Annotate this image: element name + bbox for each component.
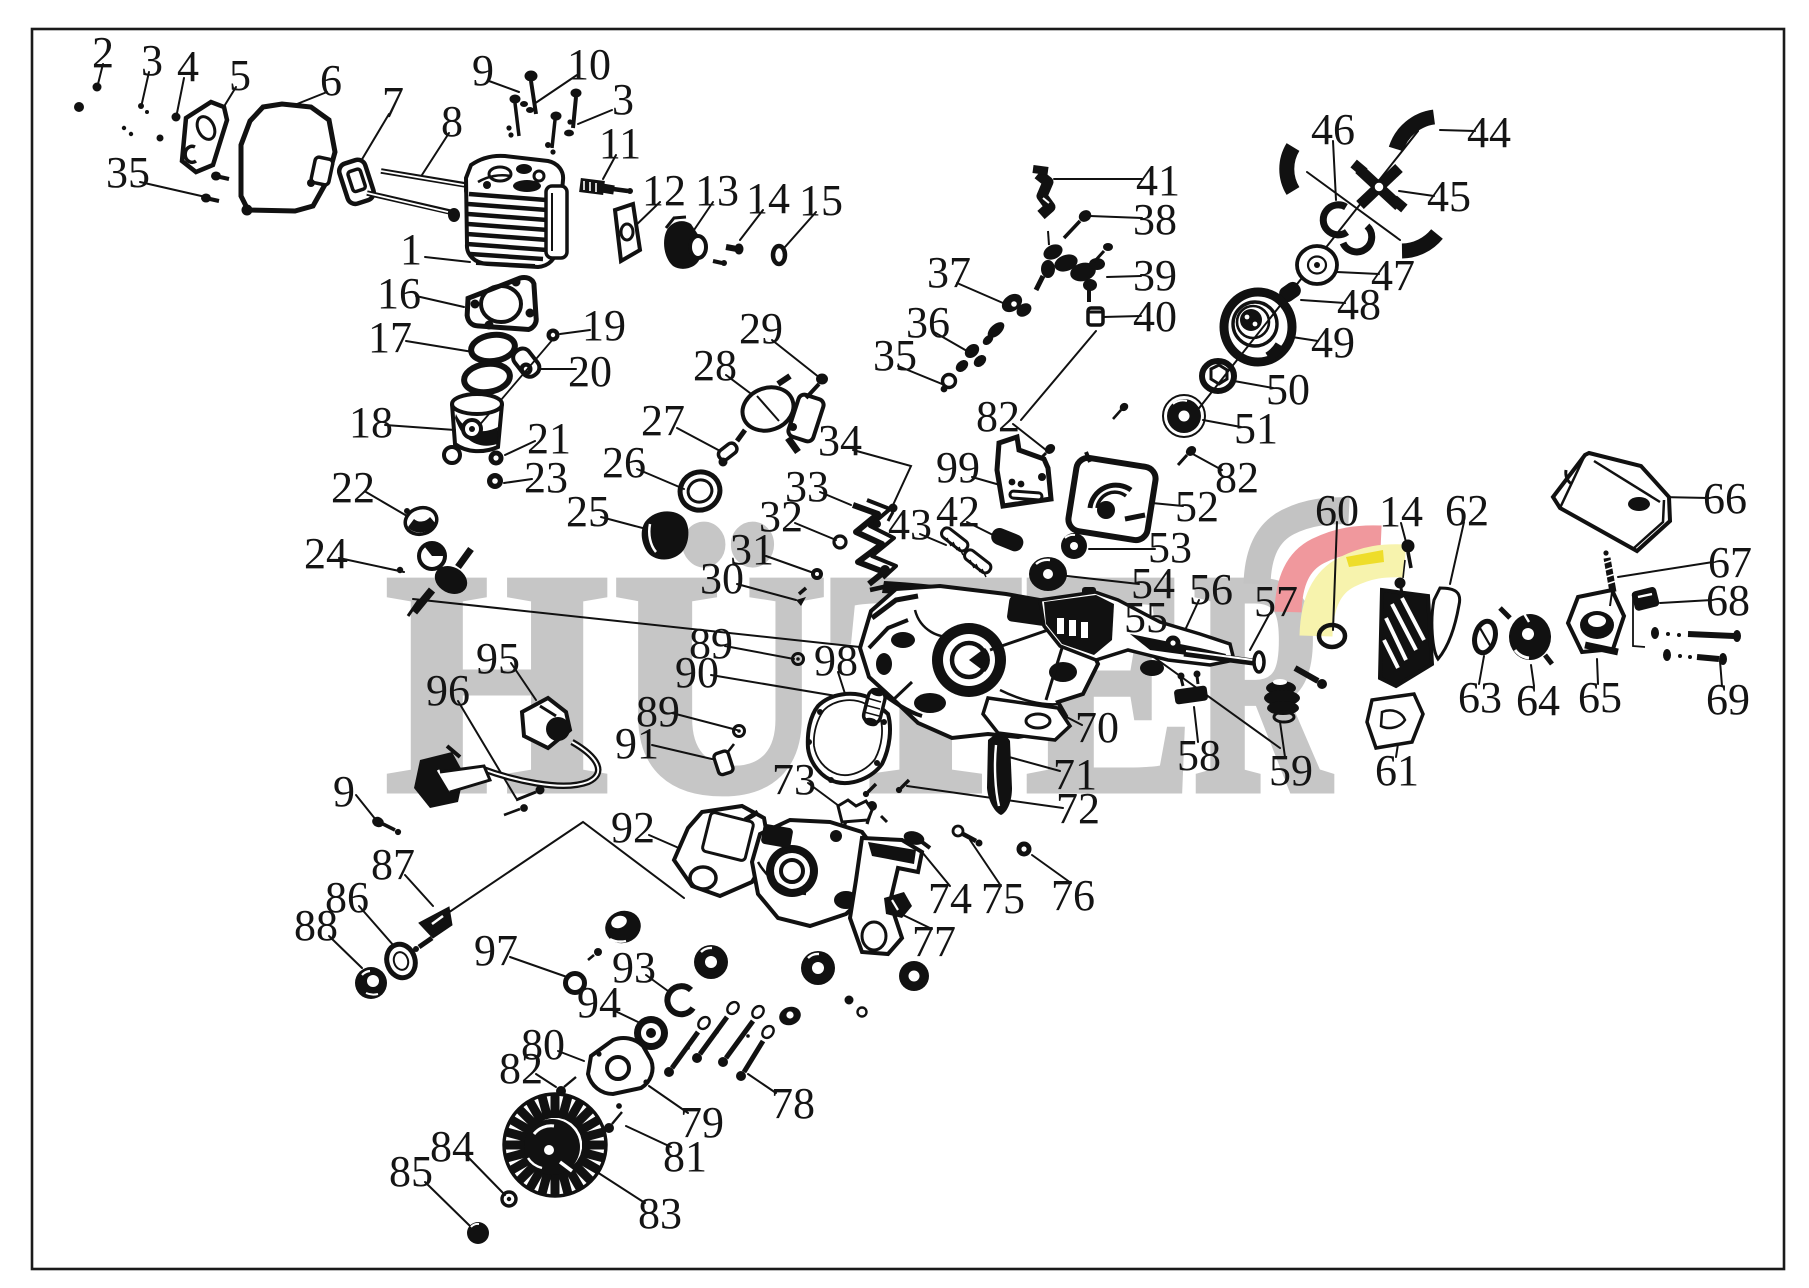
svg-text:57: 57 bbox=[1254, 577, 1298, 626]
svg-text:11: 11 bbox=[599, 119, 641, 168]
svg-text:84: 84 bbox=[430, 1122, 474, 1171]
svg-text:65: 65 bbox=[1578, 673, 1622, 722]
svg-text:94: 94 bbox=[577, 978, 621, 1027]
svg-text:37: 37 bbox=[927, 248, 971, 297]
svg-text:74: 74 bbox=[928, 874, 972, 923]
svg-text:17: 17 bbox=[368, 313, 412, 362]
svg-text:69: 69 bbox=[1706, 675, 1750, 724]
svg-text:40: 40 bbox=[1133, 292, 1177, 341]
svg-text:42: 42 bbox=[936, 487, 980, 536]
svg-text:13: 13 bbox=[695, 166, 739, 215]
svg-text:29: 29 bbox=[739, 304, 783, 353]
svg-text:27: 27 bbox=[641, 396, 685, 445]
svg-text:18: 18 bbox=[349, 398, 393, 447]
svg-text:75: 75 bbox=[981, 874, 1025, 923]
svg-text:38: 38 bbox=[1133, 195, 1177, 244]
svg-text:81: 81 bbox=[663, 1132, 707, 1181]
svg-text:72: 72 bbox=[1056, 784, 1100, 833]
svg-text:25: 25 bbox=[566, 487, 610, 536]
svg-text:34: 34 bbox=[818, 416, 862, 465]
svg-text:55: 55 bbox=[1124, 593, 1168, 642]
svg-text:64: 64 bbox=[1516, 676, 1560, 725]
svg-text:66: 66 bbox=[1703, 474, 1747, 523]
svg-text:1: 1 bbox=[400, 225, 422, 274]
svg-text:68: 68 bbox=[1706, 576, 1750, 625]
svg-text:98: 98 bbox=[814, 636, 858, 685]
svg-text:5: 5 bbox=[229, 51, 251, 100]
svg-text:56: 56 bbox=[1189, 565, 1233, 614]
svg-text:88: 88 bbox=[294, 901, 338, 950]
svg-text:82: 82 bbox=[1215, 453, 1259, 502]
svg-text:46: 46 bbox=[1311, 105, 1355, 154]
svg-text:19: 19 bbox=[582, 301, 626, 350]
svg-text:9: 9 bbox=[333, 767, 355, 816]
svg-text:28: 28 bbox=[693, 341, 737, 390]
svg-text:9: 9 bbox=[472, 46, 494, 95]
svg-text:2: 2 bbox=[92, 28, 114, 77]
svg-text:44: 44 bbox=[1467, 108, 1511, 157]
svg-text:30: 30 bbox=[700, 554, 744, 603]
svg-text:85: 85 bbox=[389, 1147, 433, 1196]
svg-text:97: 97 bbox=[474, 926, 518, 975]
svg-text:82: 82 bbox=[976, 392, 1020, 441]
svg-text:82: 82 bbox=[499, 1044, 543, 1093]
svg-text:12: 12 bbox=[642, 166, 686, 215]
svg-text:24: 24 bbox=[304, 529, 348, 578]
svg-text:51: 51 bbox=[1234, 404, 1278, 453]
svg-text:15: 15 bbox=[799, 176, 843, 225]
svg-text:4: 4 bbox=[177, 42, 199, 91]
svg-text:10: 10 bbox=[567, 40, 611, 89]
svg-text:14: 14 bbox=[1379, 487, 1423, 536]
svg-text:78: 78 bbox=[771, 1079, 815, 1128]
svg-text:26: 26 bbox=[602, 438, 646, 487]
svg-text:60: 60 bbox=[1315, 486, 1359, 535]
svg-text:16: 16 bbox=[377, 269, 421, 318]
svg-text:99: 99 bbox=[936, 443, 980, 492]
svg-text:62: 62 bbox=[1445, 486, 1489, 535]
svg-text:73: 73 bbox=[772, 755, 816, 804]
svg-text:61: 61 bbox=[1375, 746, 1419, 795]
svg-text:49: 49 bbox=[1311, 318, 1355, 367]
svg-text:6: 6 bbox=[320, 56, 342, 105]
svg-text:3: 3 bbox=[612, 75, 634, 124]
svg-text:96: 96 bbox=[426, 666, 470, 715]
svg-text:95: 95 bbox=[476, 634, 520, 683]
svg-text:3: 3 bbox=[141, 36, 163, 85]
svg-text:58: 58 bbox=[1177, 731, 1221, 780]
svg-text:76: 76 bbox=[1051, 871, 1095, 920]
svg-text:23: 23 bbox=[524, 453, 568, 502]
svg-text:70: 70 bbox=[1075, 703, 1119, 752]
svg-text:35: 35 bbox=[106, 148, 150, 197]
svg-text:63: 63 bbox=[1458, 673, 1502, 722]
svg-text:45: 45 bbox=[1427, 172, 1471, 221]
svg-text:8: 8 bbox=[441, 97, 463, 146]
svg-text:91: 91 bbox=[615, 719, 659, 768]
svg-text:77: 77 bbox=[912, 917, 956, 966]
svg-text:22: 22 bbox=[331, 463, 375, 512]
svg-text:87: 87 bbox=[371, 840, 415, 889]
svg-text:20: 20 bbox=[568, 347, 612, 396]
svg-text:43: 43 bbox=[888, 500, 932, 549]
svg-text:83: 83 bbox=[638, 1189, 682, 1238]
svg-text:92: 92 bbox=[611, 803, 655, 852]
svg-text:36: 36 bbox=[906, 298, 950, 347]
svg-text:90: 90 bbox=[675, 648, 719, 697]
svg-text:59: 59 bbox=[1269, 746, 1313, 795]
svg-text:7: 7 bbox=[382, 78, 404, 127]
svg-text:14: 14 bbox=[746, 174, 790, 223]
